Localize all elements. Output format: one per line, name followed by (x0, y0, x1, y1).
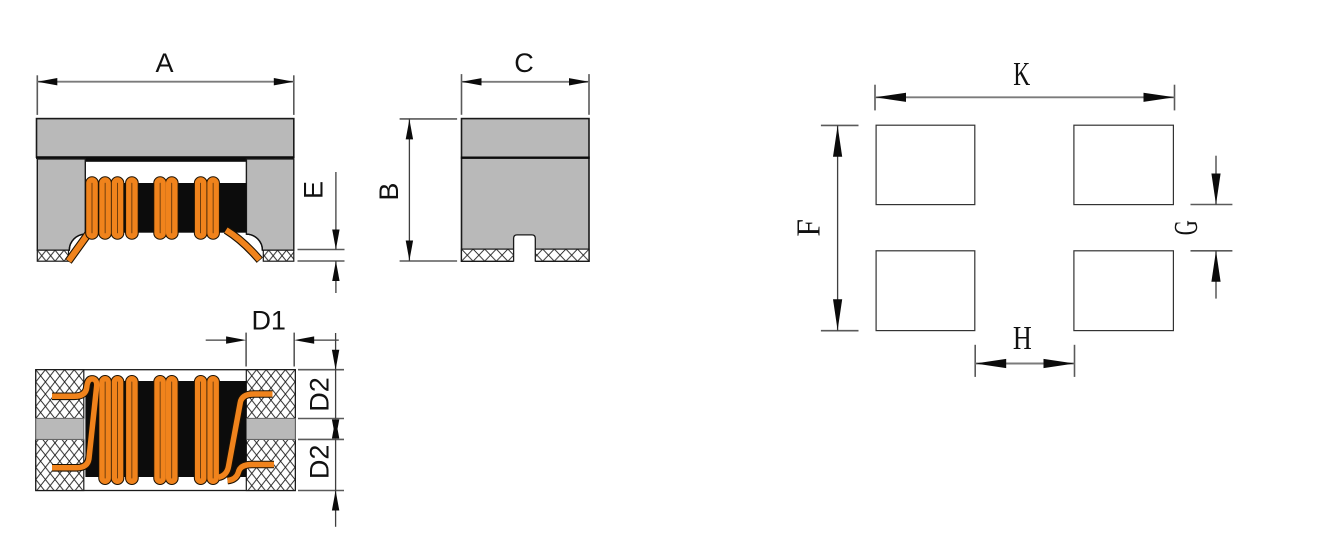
svg-text:C: C (514, 48, 534, 78)
svg-text:E: E (298, 181, 328, 199)
svg-text:K: K (1013, 56, 1030, 93)
svg-text:A: A (155, 48, 173, 78)
svg-text:D2: D2 (305, 445, 335, 480)
svg-text:H: H (1013, 319, 1032, 357)
svg-text:G: G (1168, 220, 1205, 235)
svg-text:F: F (791, 219, 828, 237)
svg-text:D1: D1 (251, 306, 286, 336)
svg-text:B: B (374, 183, 404, 201)
svg-text:D2: D2 (305, 377, 335, 412)
